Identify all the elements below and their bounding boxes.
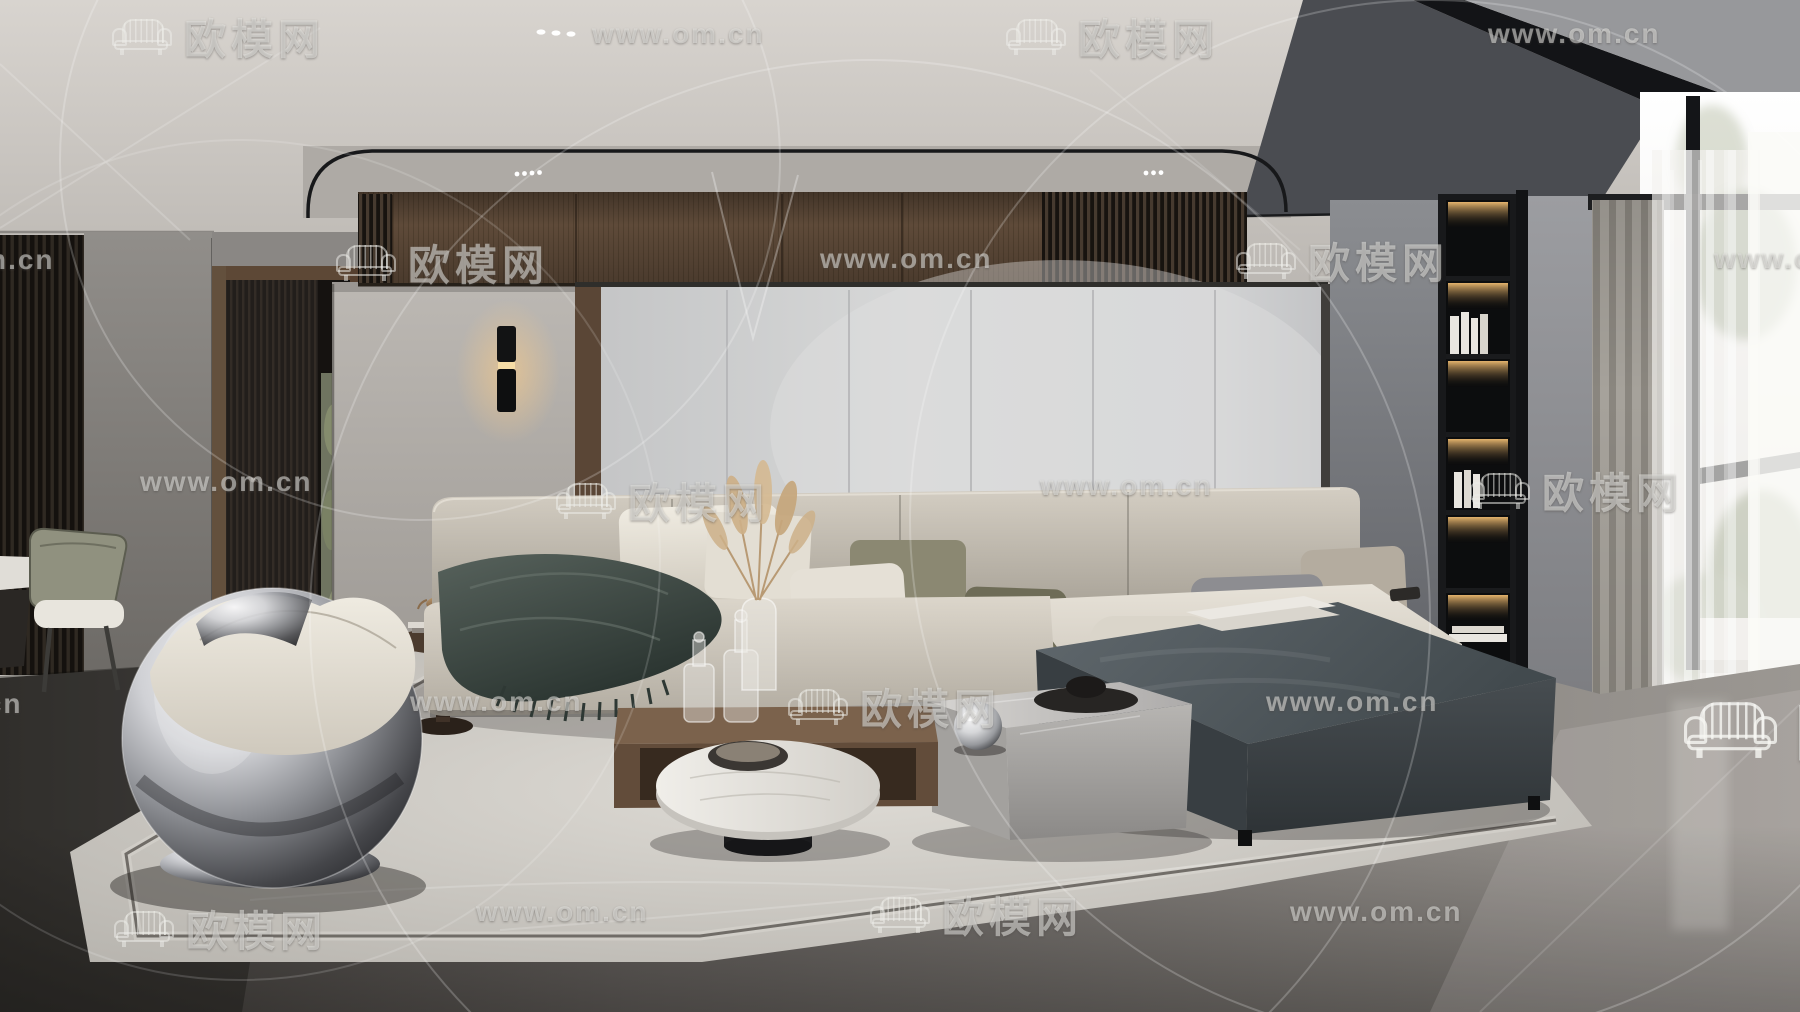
- door-frame-lintel: [212, 266, 364, 280]
- wall-sconce: [497, 326, 516, 412]
- scene-render: [0, 0, 1800, 1012]
- bookshelf-niche: [1438, 190, 1528, 674]
- slat-band-left: [358, 194, 392, 286]
- round-marble-table: [650, 740, 890, 862]
- stone-block-table: [912, 676, 1212, 862]
- living-room-render: 欧模网www.om.cn欧模网www.om.cnwww.om.cn欧模网www.…: [0, 0, 1800, 1012]
